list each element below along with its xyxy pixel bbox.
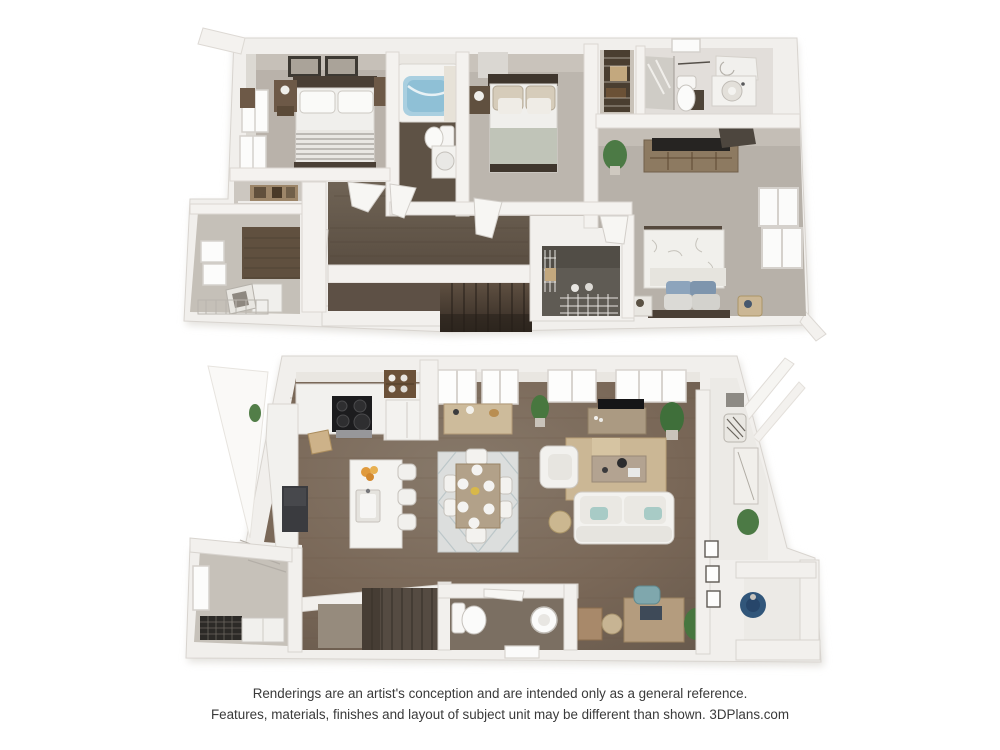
svg-text:Renderings are an artist's con: Renderings are an artist's conception an… (253, 686, 748, 701)
svg-text:Features, materials, finishes: Features, materials, finishes and layout… (211, 707, 789, 722)
